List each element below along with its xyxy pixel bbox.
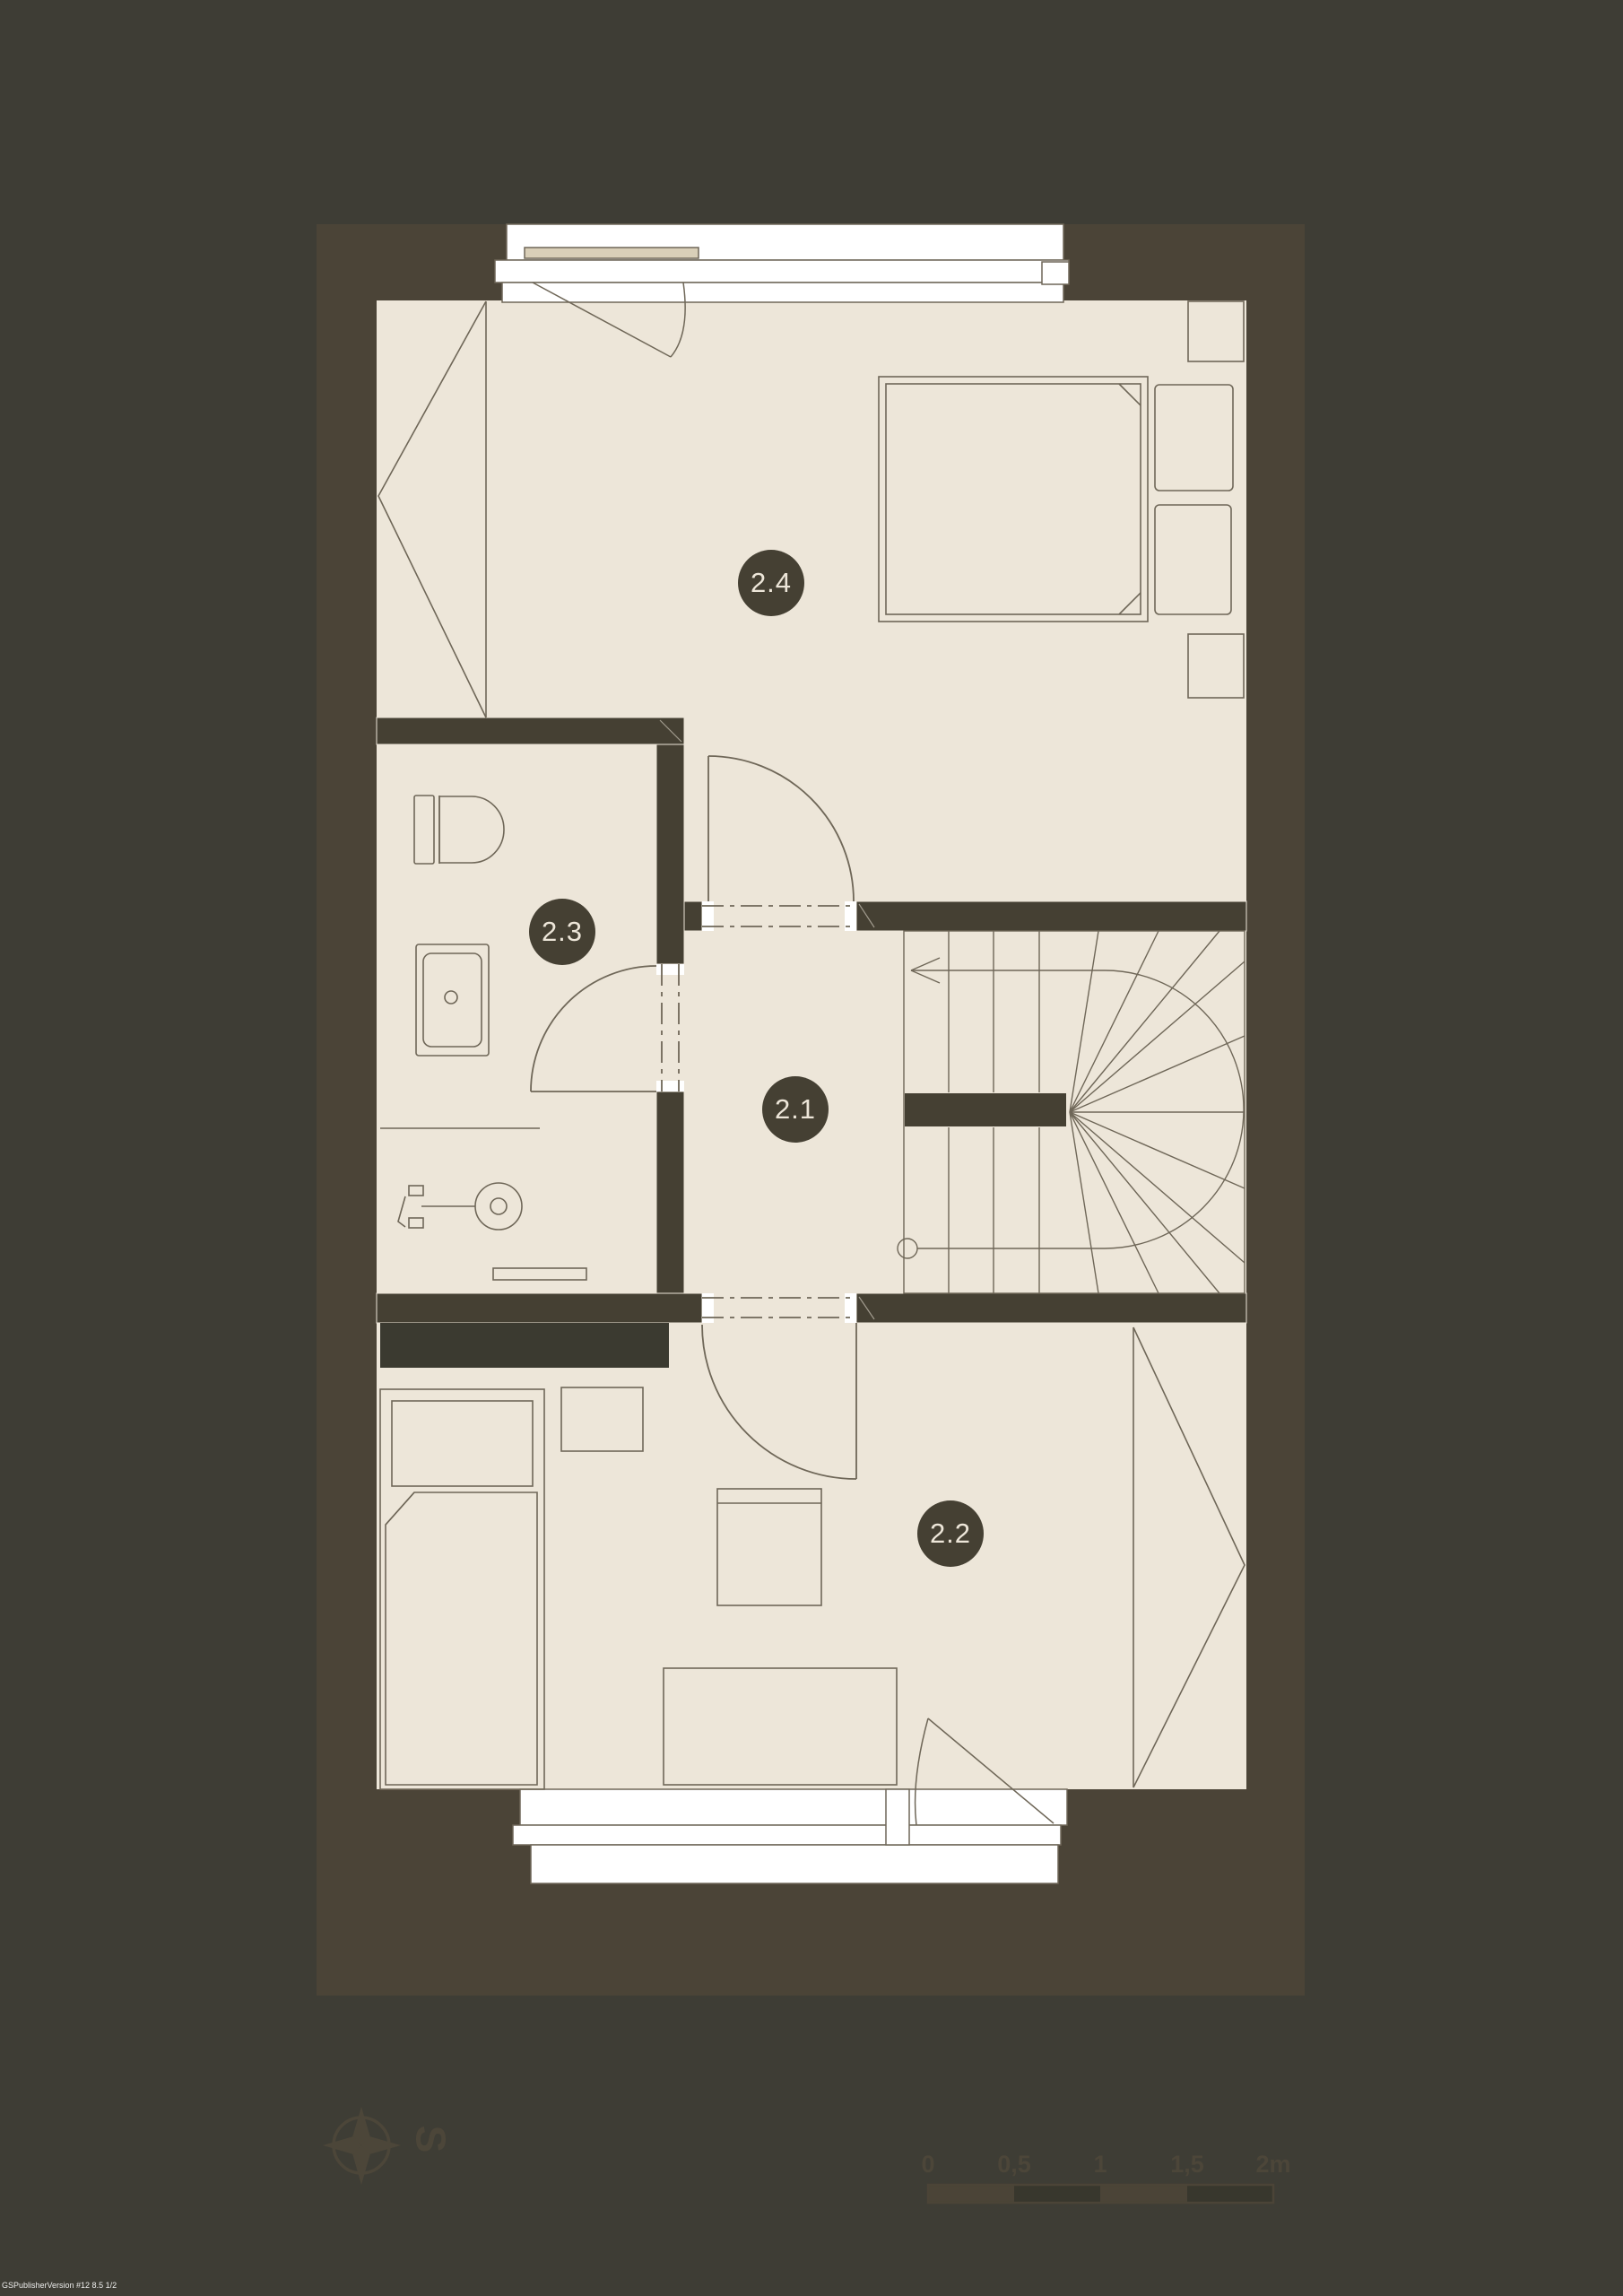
room-badge-2-1: 2.1: [762, 1076, 829, 1143]
scale-bar: [928, 2185, 1273, 2203]
room-badge-2-2: 2.2: [917, 1500, 984, 1567]
room-badge-2-3: 2.3: [529, 899, 595, 965]
scale-tick-1: 1: [1093, 2151, 1107, 2179]
window-sill: [525, 248, 699, 258]
floor-plan-drawing: [0, 0, 1623, 2296]
floor-area: [377, 300, 1246, 1789]
built-in-wardrobe: [380, 1323, 669, 1368]
room-badge-2-4: 2.4: [738, 550, 804, 616]
compass-rose-icon: [323, 2107, 401, 2185]
scale-tick-05: 0,5: [997, 2151, 1031, 2179]
floor-plan-page: 2.4 2.3 2.1 2.2 S 0 0,5 1 1,5 2m GSPubli…: [0, 0, 1623, 2296]
compass-south-label: S: [406, 2126, 455, 2153]
scale-tick-0: 0: [921, 2151, 934, 2179]
scale-tick-15: 1,5: [1170, 2151, 1204, 2179]
publisher-watermark: GSPublisherVersion #12 8.5 1/2: [2, 2281, 117, 2290]
scale-tick-2m: 2m: [1255, 2151, 1290, 2179]
